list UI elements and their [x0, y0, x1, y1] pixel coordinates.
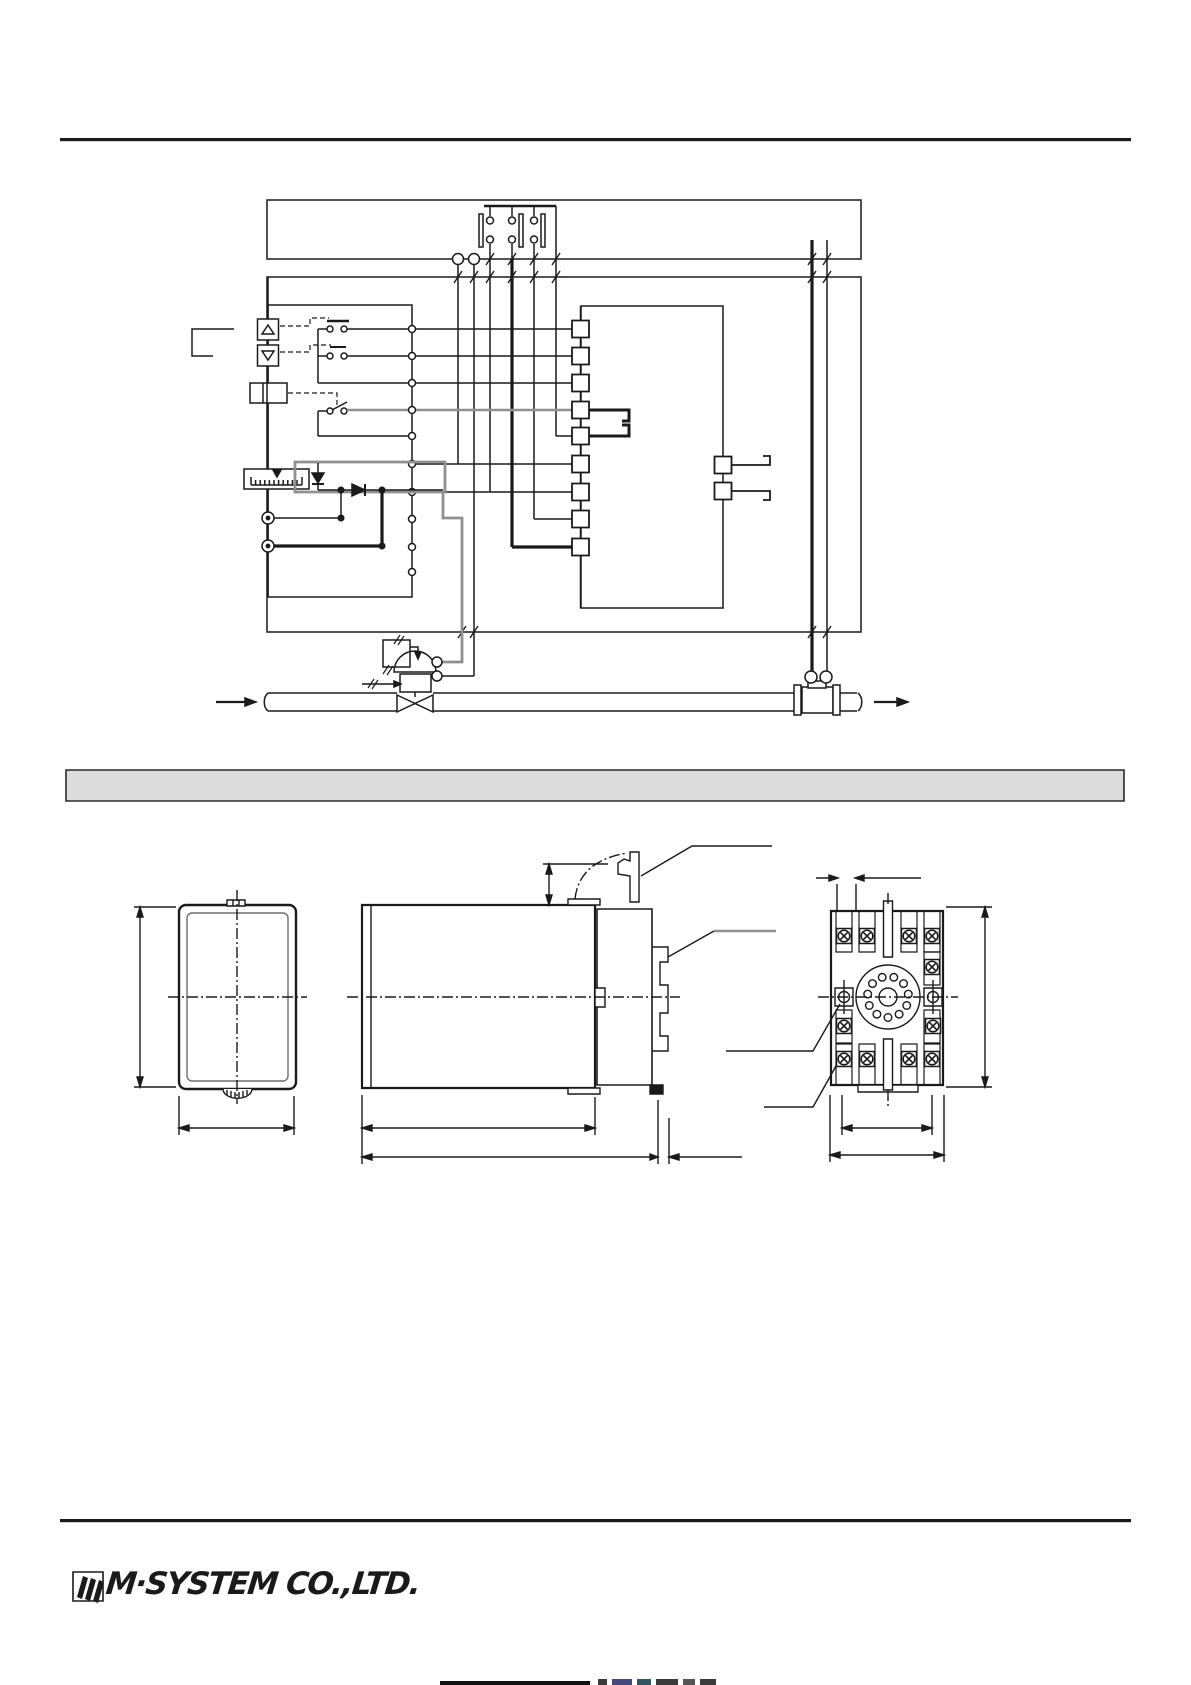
hook-leader [641, 846, 772, 876]
sensor-circle [805, 671, 817, 683]
down-button [258, 345, 279, 366]
keying-slot-top [884, 901, 893, 957]
flow-arrow-in [245, 698, 256, 706]
switch-contacts [318, 321, 349, 436]
socket-view [726, 875, 992, 1162]
terminal-squares-left [572, 306, 589, 608]
din-rail-profile [652, 947, 668, 1051]
top-instrument-box [267, 200, 861, 259]
side-depth-dimensions [362, 1095, 742, 1164]
io-sub-block [581, 306, 723, 608]
bus-junction-circle [453, 254, 464, 265]
dimension-drawings [134, 846, 992, 1164]
controller-block [267, 277, 861, 632]
panel-bracket [192, 329, 234, 356]
side-view [347, 846, 776, 1164]
logo-mark [73, 1572, 104, 1603]
flow-arrow-out [897, 698, 908, 706]
din-hook [575, 852, 639, 902]
clipped-footer-text [440, 1679, 716, 1685]
front-panel-sub-block [268, 305, 412, 597]
socket-leaders [726, 1004, 840, 1107]
setting-scale [244, 469, 309, 489]
top-rule [60, 138, 1131, 141]
front-view [134, 890, 307, 1135]
output-circle [432, 657, 442, 667]
rail-foot [650, 1085, 663, 1094]
bus-junction-circle [469, 254, 480, 265]
up-button [258, 319, 279, 340]
cr-box [250, 383, 287, 403]
centerlines [168, 890, 307, 1104]
company-logo-text: M·SYSTEM CO.,LTD. [104, 1566, 421, 1602]
footer-rule [60, 1519, 1131, 1522]
socket-top-dimension [816, 875, 921, 910]
flow-sensor [794, 671, 840, 715]
page-artwork [0, 0, 1191, 1685]
contact-output-stubs [589, 410, 629, 436]
section-header-bar [66, 770, 1124, 801]
connection-diagram [192, 200, 908, 715]
keying-slot-bottom [884, 1039, 893, 1090]
relay-output-stubs [732, 456, 770, 500]
socket-width-dimensions [830, 1095, 944, 1162]
sensor-circle [820, 671, 832, 683]
connector-contacts [479, 206, 556, 259]
control-valve [362, 635, 474, 712]
rail-leader [668, 931, 776, 957]
datasheet-page: M·SYSTEM CO.,LTD. [0, 0, 1191, 1685]
output-circle [432, 671, 442, 681]
